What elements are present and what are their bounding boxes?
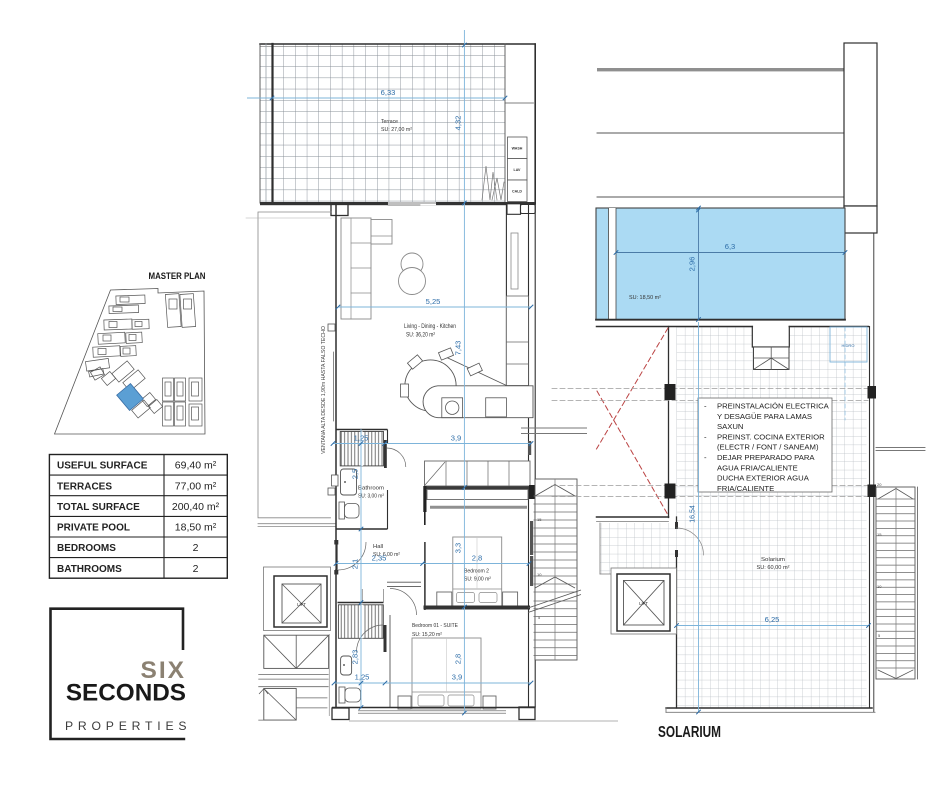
svg-text:200,40 m²: 200,40 m² [172, 501, 220, 513]
svg-text:SU: 36,20 m²: SU: 36,20 m² [406, 332, 435, 339]
svg-text:18,50 m²: 18,50 m² [175, 522, 217, 534]
svg-text:Bedroom 2: Bedroom 2 [464, 569, 489, 575]
svg-text:3,3: 3,3 [454, 543, 463, 554]
svg-text:SU: 3,00 m²: SU: 3,00 m² [358, 494, 384, 500]
svg-text:Y DESAGÜE PARA LAMAS: Y DESAGÜE PARA LAMAS [717, 412, 812, 421]
svg-text:WASH: WASH [512, 147, 523, 151]
svg-text:6,3: 6,3 [725, 242, 736, 251]
svg-text:BEDROOMS: BEDROOMS [57, 543, 116, 554]
svg-text:BATHROOMS: BATHROOMS [57, 564, 122, 575]
svg-text:SU: 27,00 m²: SU: 27,00 m² [381, 127, 412, 133]
svg-text:Terrace: Terrace [381, 119, 398, 125]
svg-text:Bedroom 01 - SUITE: Bedroom 01 - SUITE [412, 623, 458, 629]
svg-text:16,54: 16,54 [690, 505, 697, 523]
svg-text:Hall: Hall [373, 544, 383, 550]
svg-text:Living - Dining - Kitchen: Living - Dining - Kitchen [404, 323, 456, 330]
svg-text:2,5: 2,5 [350, 469, 359, 480]
svg-text:PROPERTIES: PROPERTIES [65, 719, 191, 733]
svg-text:10: 10 [877, 584, 882, 589]
svg-text:LAV: LAV [514, 168, 522, 172]
svg-text:-: - [704, 402, 707, 411]
svg-text:2,83: 2,83 [350, 650, 359, 665]
svg-text:2,8: 2,8 [472, 554, 483, 563]
svg-text:2,8: 2,8 [454, 654, 463, 665]
svg-text:3,9: 3,9 [451, 434, 462, 443]
svg-text:SAXUN: SAXUN [717, 422, 744, 431]
svg-text:2,1: 2,1 [350, 559, 359, 570]
svg-text:VENTANA ALTA DESDE 1,90m HASTA: VENTANA ALTA DESDE 1,90m HASTA FALSO TEC… [321, 326, 327, 454]
svg-text:1,25: 1,25 [355, 673, 370, 682]
svg-text:4,32: 4,32 [454, 116, 463, 131]
svg-text:DUCHA EXTERIOR AGUA: DUCHA EXTERIOR AGUA [717, 474, 810, 483]
svg-text:SECONDS: SECONDS [66, 680, 186, 707]
svg-text:PREINSTALACIÓN ELECTRICA: PREINSTALACIÓN ELECTRICA [717, 402, 830, 411]
svg-text:Solarium: Solarium [761, 557, 785, 563]
svg-text:SU: 60,00 m²: SU: 60,00 m² [757, 565, 790, 571]
svg-text:PREINST. COCINA EXTERIOR: PREINST. COCINA EXTERIOR [717, 432, 825, 441]
svg-text:PRIVATE POOL: PRIVATE POOL [57, 523, 130, 534]
svg-text:20: 20 [877, 482, 882, 487]
svg-text:3,9: 3,9 [452, 673, 463, 682]
svg-text:SOLARIUM: SOLARIUM [658, 724, 721, 741]
svg-text:7,43: 7,43 [454, 341, 463, 356]
svg-text:(ELECTR / FONT / SANEAM): (ELECTR / FONT / SANEAM) [717, 443, 819, 452]
svg-text:MASTER PLAN: MASTER PLAN [149, 271, 206, 281]
svg-text:2: 2 [193, 542, 199, 554]
svg-text:-: - [704, 432, 707, 441]
svg-text:69,40 m²: 69,40 m² [175, 460, 217, 472]
svg-text:LIFT: LIFT [639, 601, 648, 606]
svg-text:SU: 18,50 m²: SU: 18,50 m² [629, 295, 661, 301]
svg-text:DEJAR PREPARADO PARA: DEJAR PREPARADO PARA [717, 453, 815, 462]
svg-text:CALD: CALD [512, 190, 522, 194]
svg-text:TERRACES: TERRACES [57, 481, 112, 492]
svg-text:-: - [704, 453, 707, 462]
svg-text:2,35: 2,35 [372, 554, 387, 563]
svg-text:SU: 9,00 m²: SU: 9,00 m² [464, 577, 491, 583]
svg-text:HIDRO: HIDRO [842, 343, 855, 348]
svg-text:SU: 15,20 m²: SU: 15,20 m² [412, 632, 442, 638]
svg-text:FRIA/CALIENTE: FRIA/CALIENTE [717, 484, 774, 493]
svg-text:6,33: 6,33 [381, 88, 396, 97]
svg-text:2,96: 2,96 [688, 257, 697, 272]
svg-text:LIFT: LIFT [297, 602, 306, 607]
svg-text:2: 2 [193, 563, 199, 575]
svg-text:1,25: 1,25 [354, 434, 369, 443]
svg-text:5,25: 5,25 [426, 297, 441, 306]
svg-text:TOTAL SURFACE: TOTAL SURFACE [57, 502, 140, 513]
svg-text:USEFUL SURFACE: USEFUL SURFACE [57, 461, 148, 472]
svg-text:15: 15 [537, 517, 542, 522]
svg-text:Bathroom: Bathroom [358, 486, 384, 492]
svg-text:15: 15 [877, 532, 882, 537]
svg-text:77,00 m²: 77,00 m² [175, 480, 217, 492]
svg-text:6,25: 6,25 [765, 615, 780, 624]
svg-text:10: 10 [537, 572, 542, 577]
svg-text:AGUA FRIA/CALIENTE: AGUA FRIA/CALIENTE [717, 463, 798, 472]
